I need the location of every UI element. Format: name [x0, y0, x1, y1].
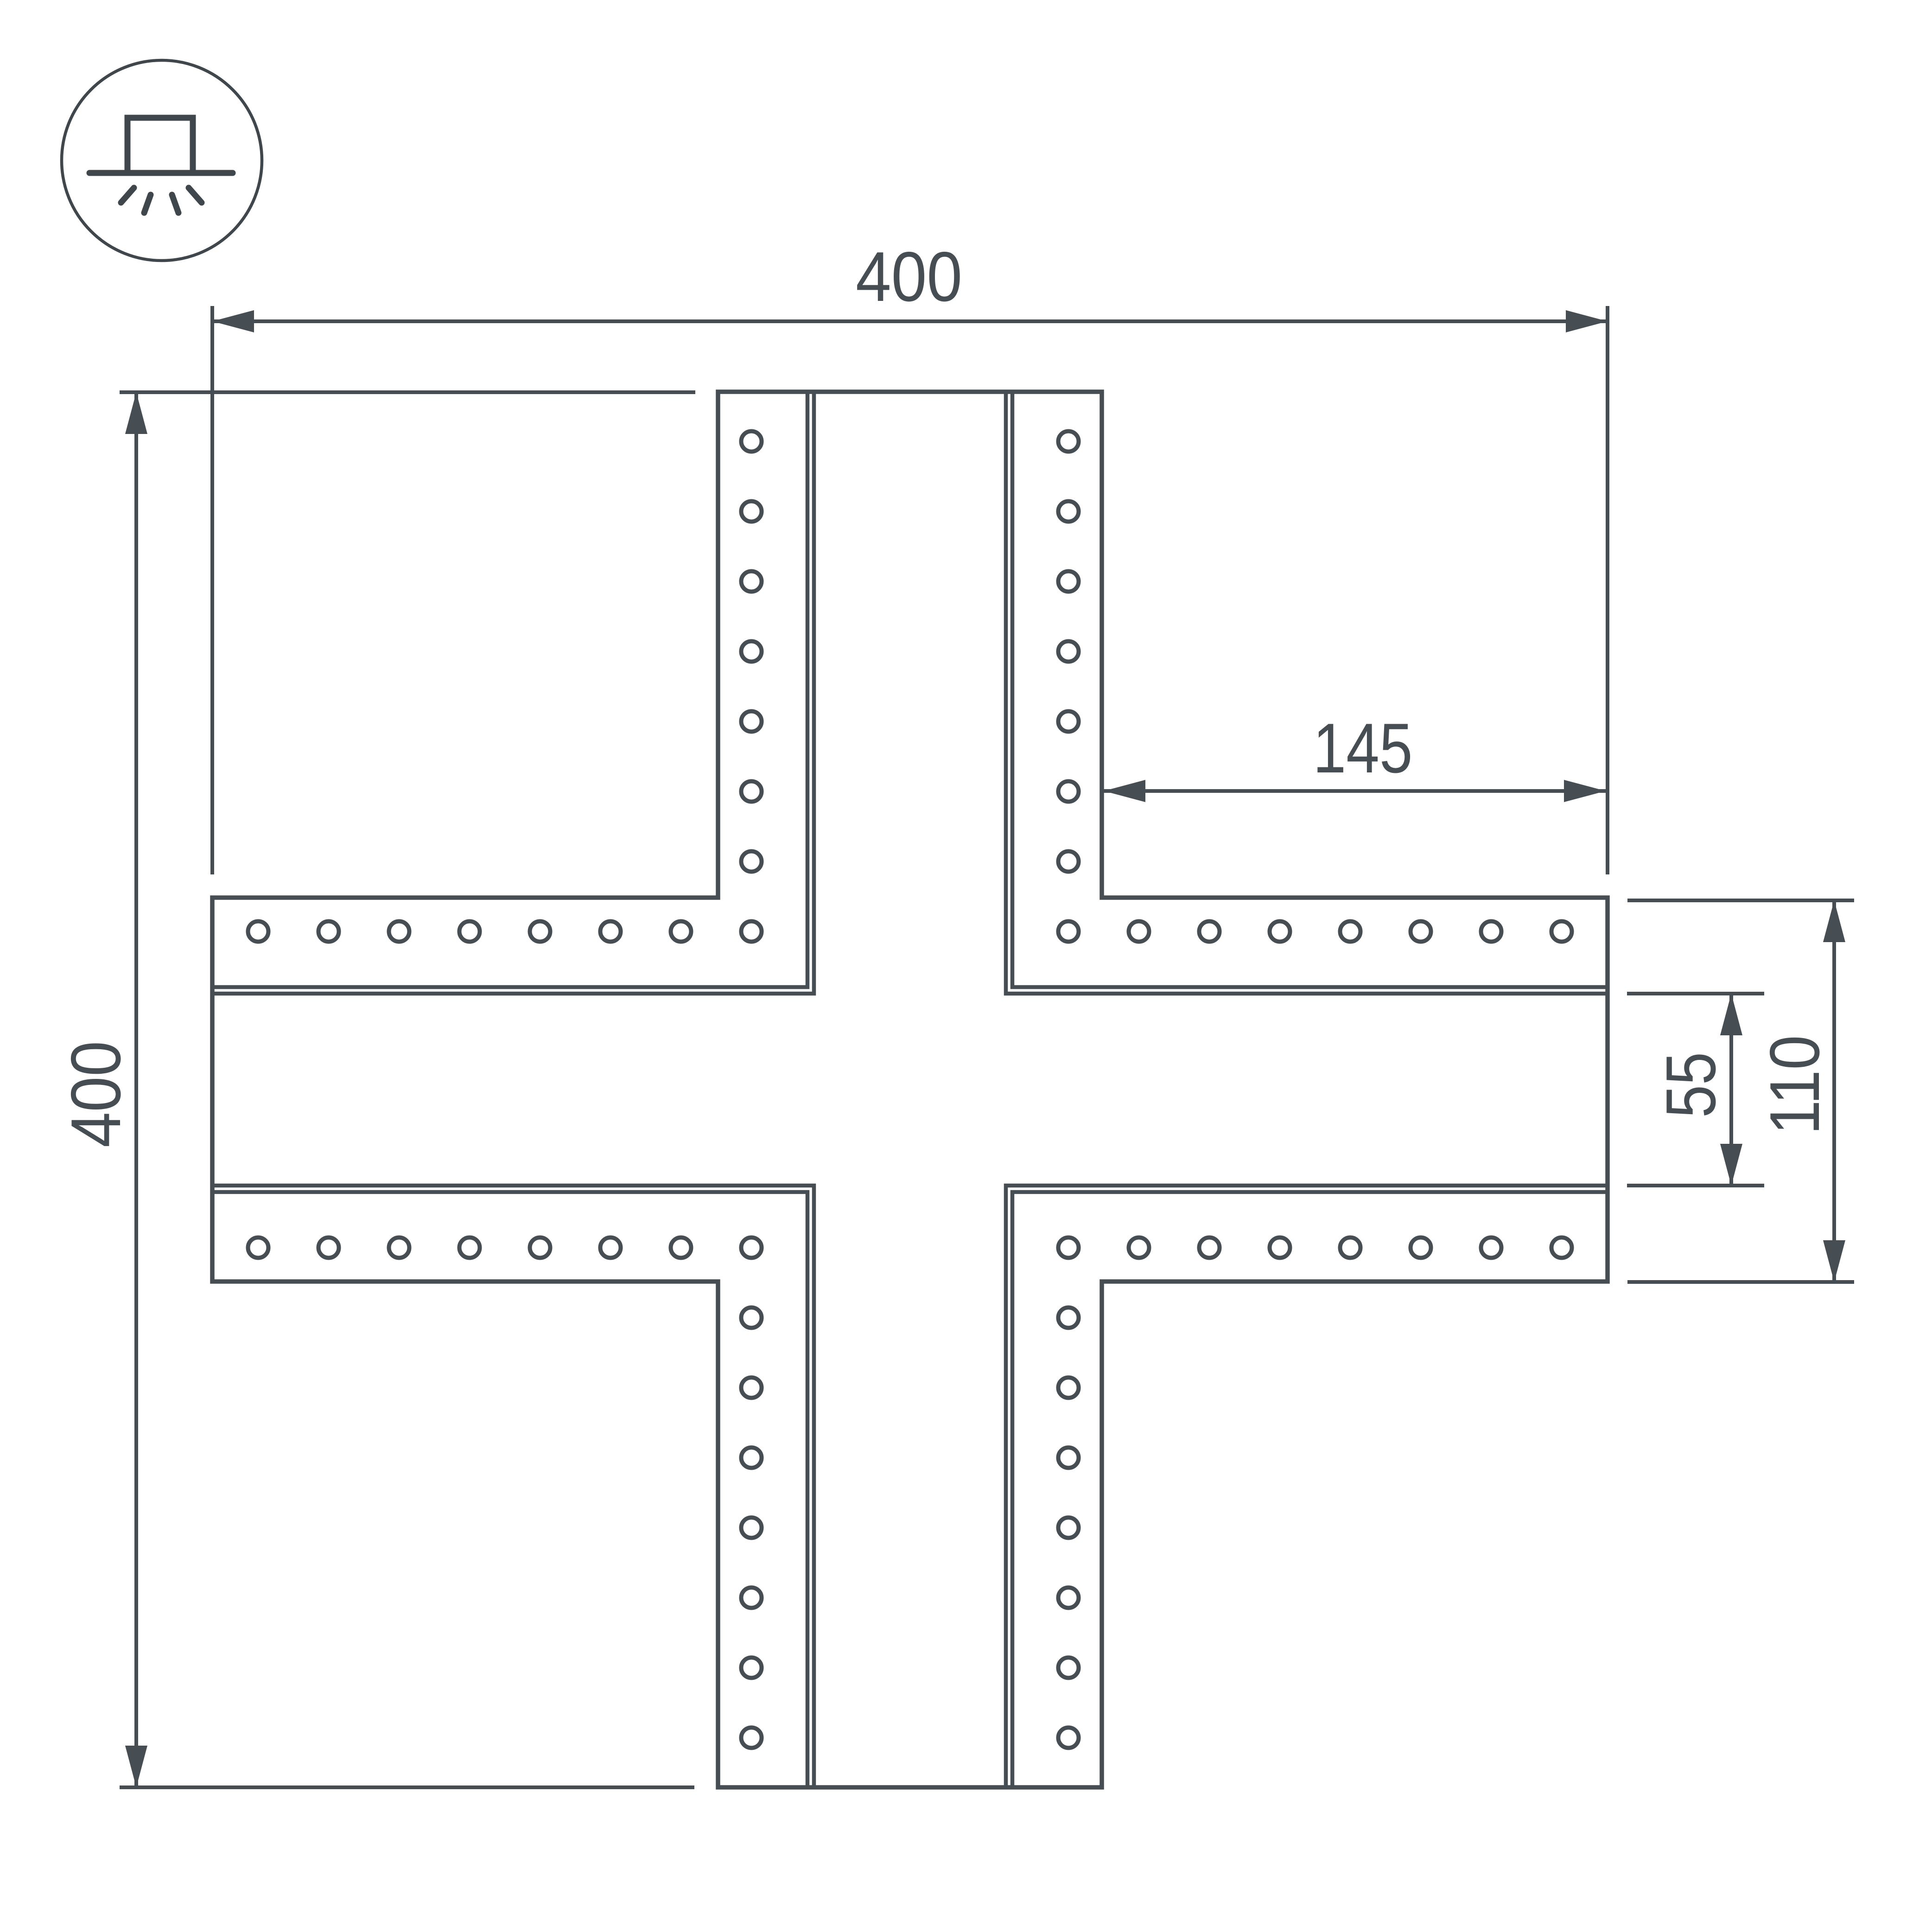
svg-text:400: 400	[57, 1041, 135, 1148]
svg-text:55: 55	[1652, 1052, 1730, 1118]
svg-text:110: 110	[1755, 1035, 1834, 1135]
svg-text:400: 400	[856, 237, 962, 316]
svg-text:145: 145	[1313, 709, 1413, 788]
